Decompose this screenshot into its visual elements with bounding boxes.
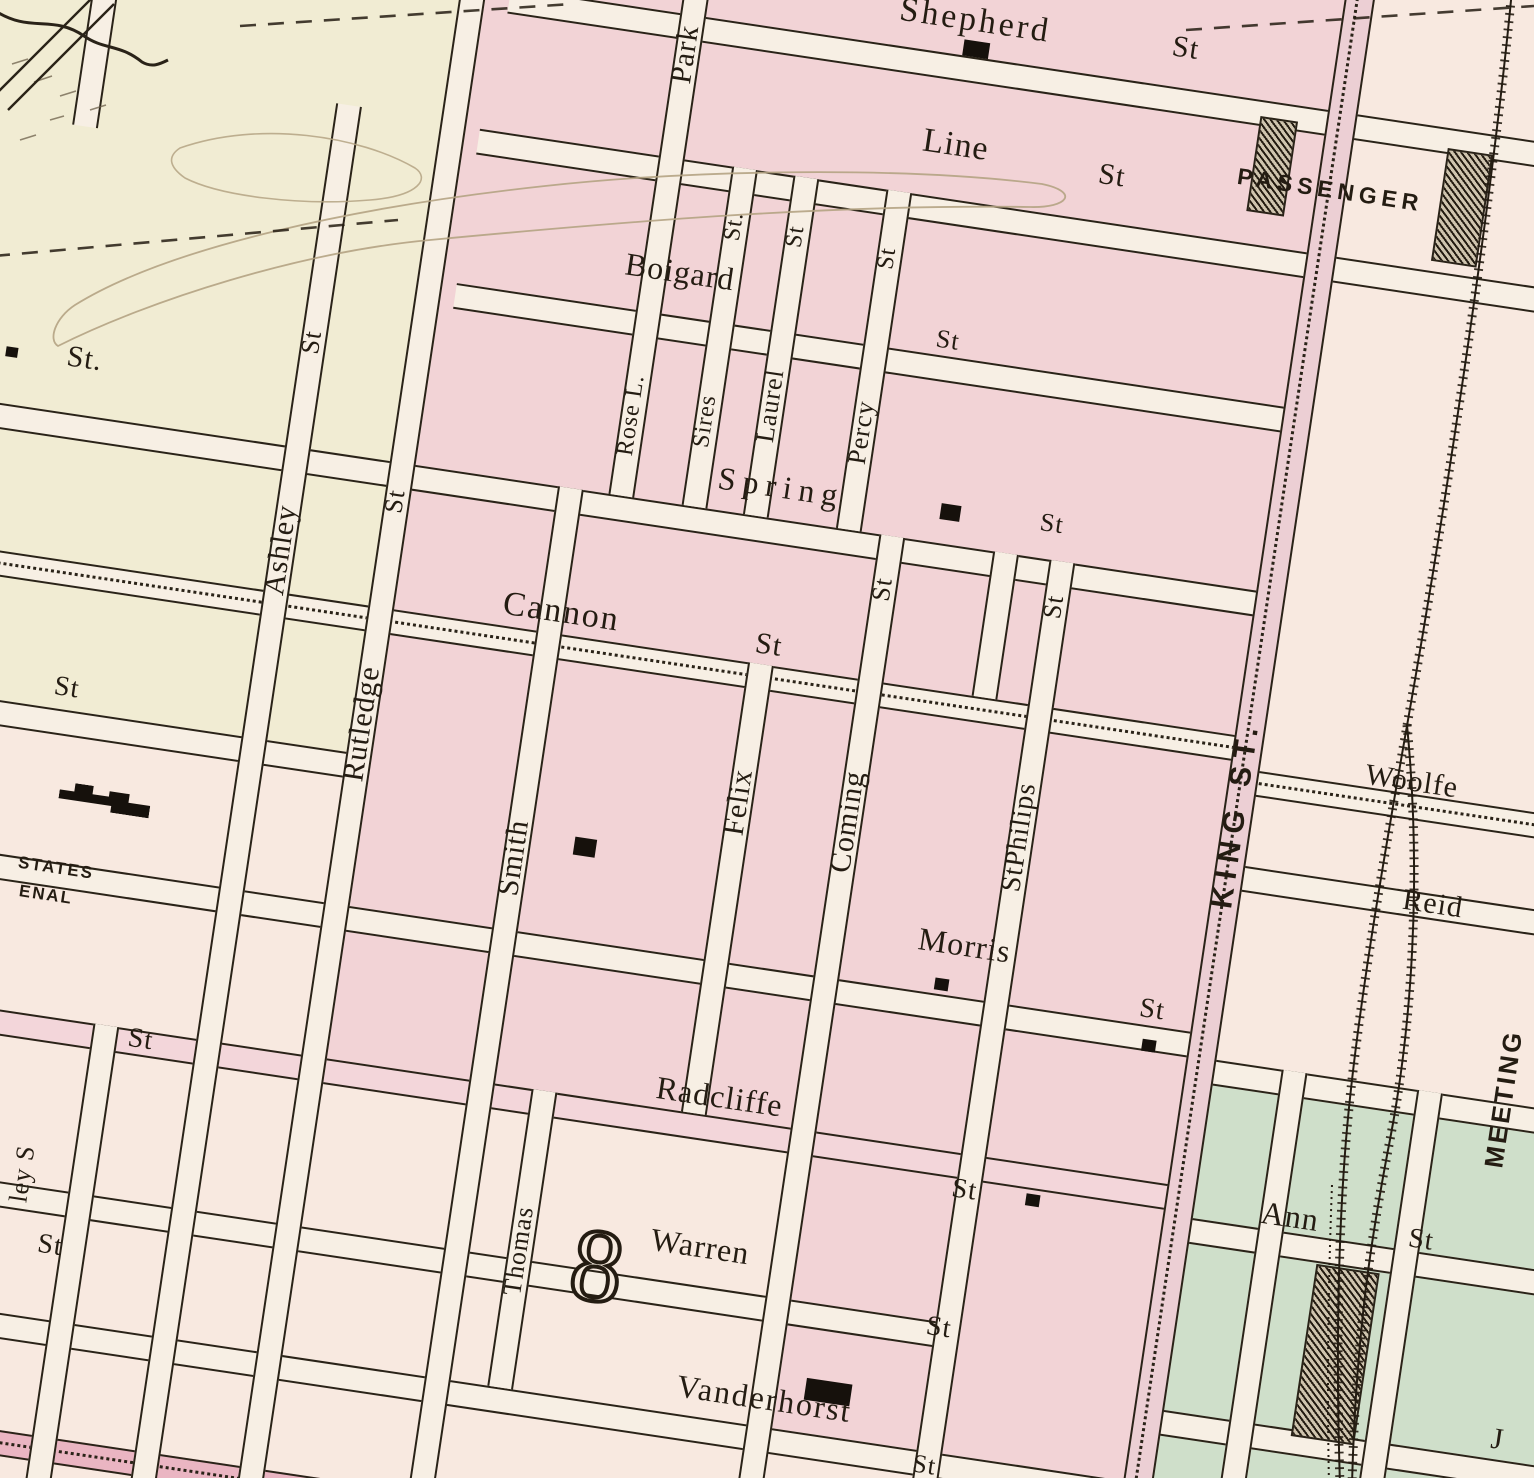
morris-street-suffix: St bbox=[1137, 992, 1167, 1027]
warren-street-suffix: St bbox=[924, 1310, 954, 1345]
ward-number-numeral: 8 bbox=[549, 1199, 646, 1330]
building-footprint bbox=[573, 837, 597, 858]
sires-lane-suffix: St. bbox=[719, 210, 750, 243]
left-warren-street-suffix: St bbox=[35, 1228, 65, 1263]
radcliffe-street-suffix: St bbox=[950, 1172, 980, 1207]
ann-street-suffix: St bbox=[1406, 1222, 1436, 1257]
building-footprint bbox=[939, 503, 961, 522]
left-mid-street-suffix: St bbox=[52, 670, 82, 705]
ashley-street-suffix: St bbox=[295, 328, 328, 356]
left-spring-street-suffix: St. bbox=[65, 339, 105, 378]
spring-street-suffix: St bbox=[1038, 507, 1066, 540]
vanderhorst-street-suffix: St bbox=[910, 1449, 938, 1478]
line-street-suffix: St bbox=[1096, 157, 1128, 195]
building-footprint bbox=[5, 346, 18, 358]
ward-number-text: 8 bbox=[563, 1205, 631, 1326]
shepherd-street-suffix: St bbox=[1170, 29, 1202, 67]
warren-street-label: Warren bbox=[648, 1221, 752, 1272]
coming-street-suffix: St bbox=[866, 575, 899, 603]
arsenal-building bbox=[57, 781, 152, 818]
boigard-street-suffix: St bbox=[934, 324, 962, 357]
building-footprint bbox=[1141, 1039, 1157, 1053]
cannon-street-suffix: St bbox=[753, 626, 785, 664]
reid-street-label: Reid bbox=[1400, 883, 1465, 926]
percy-lane-suffix: St bbox=[872, 246, 902, 272]
laurel-lane-suffix: St bbox=[781, 224, 811, 250]
reid-street-road bbox=[1238, 865, 1534, 1009]
left-radcliffe-street-suffix: St bbox=[126, 1022, 156, 1057]
building-footprint bbox=[934, 977, 950, 991]
stphilips-street-suffix: St bbox=[1037, 593, 1070, 621]
map-canvas[interactable]: Shepherd St Line St Boigard St Spring St… bbox=[0, 0, 1534, 1478]
rotated-street-grid: Shepherd St Line St Boigard St Spring St… bbox=[0, 0, 1534, 1478]
rutledge-street-suffix: St bbox=[378, 487, 411, 515]
passenger-depot-building-east bbox=[1431, 148, 1493, 268]
building-footprint bbox=[1025, 1193, 1041, 1207]
